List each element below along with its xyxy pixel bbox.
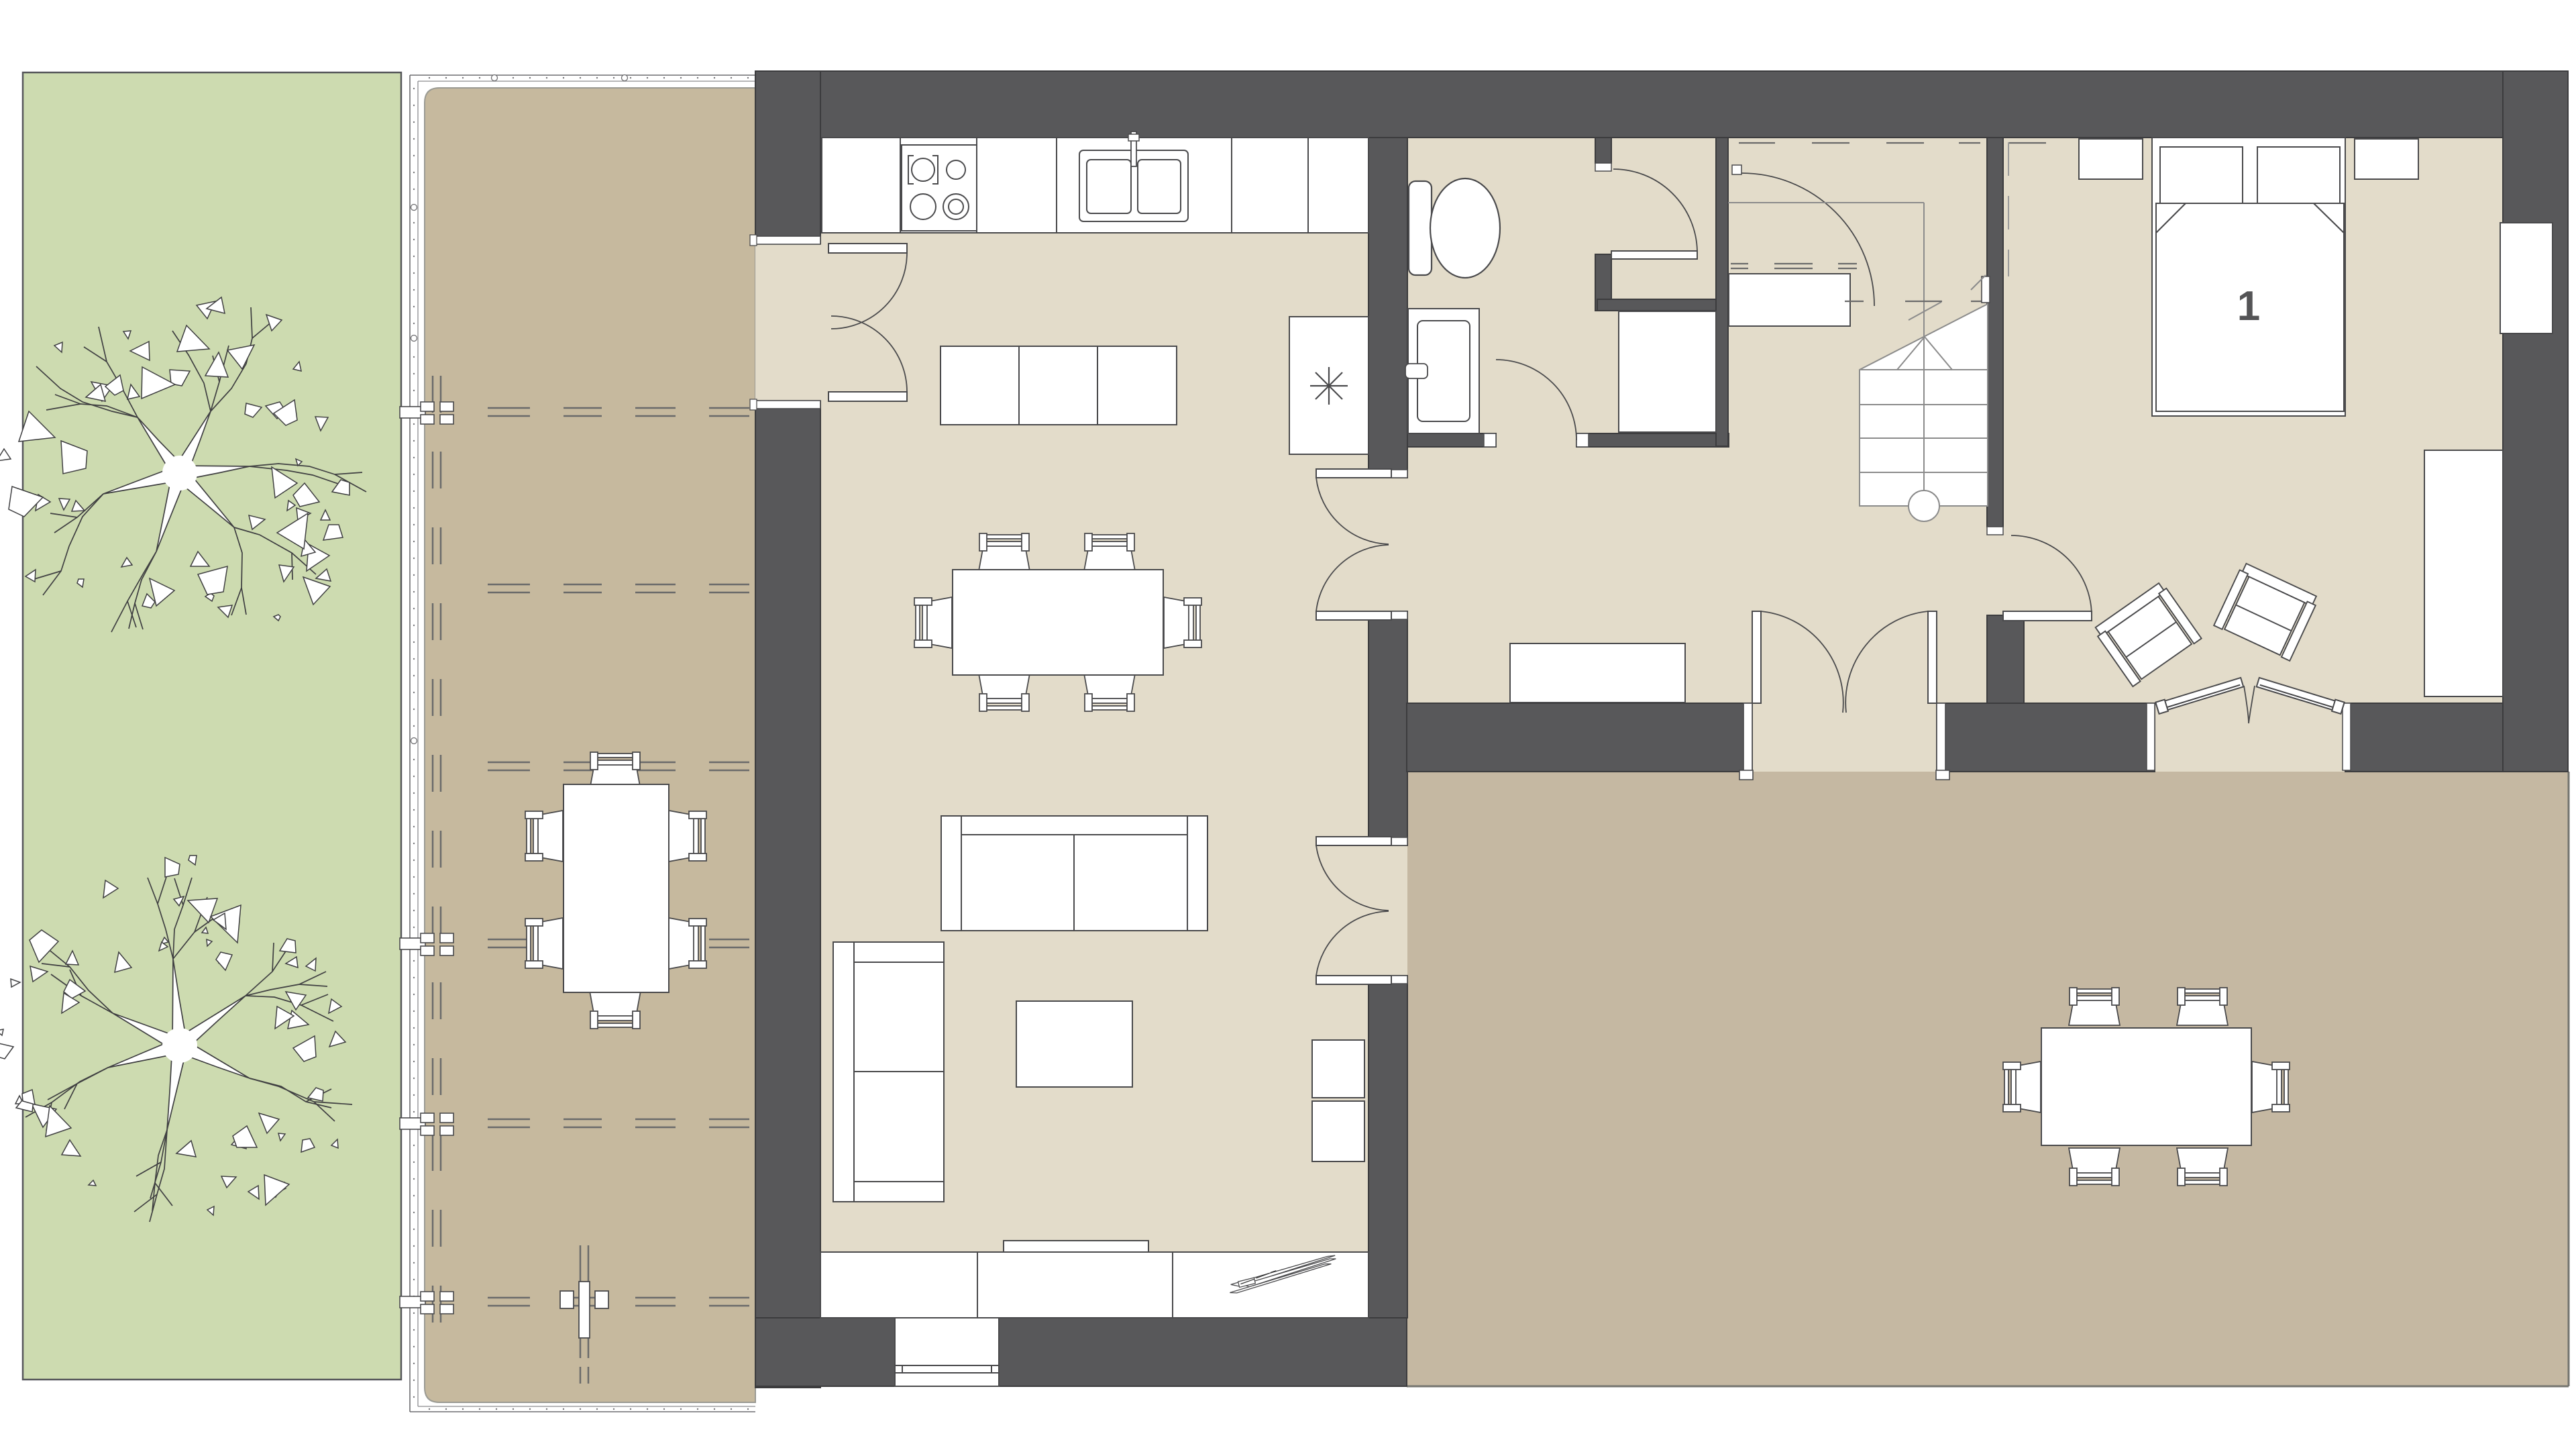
svg-text:1: 1 <box>2237 283 2260 329</box>
